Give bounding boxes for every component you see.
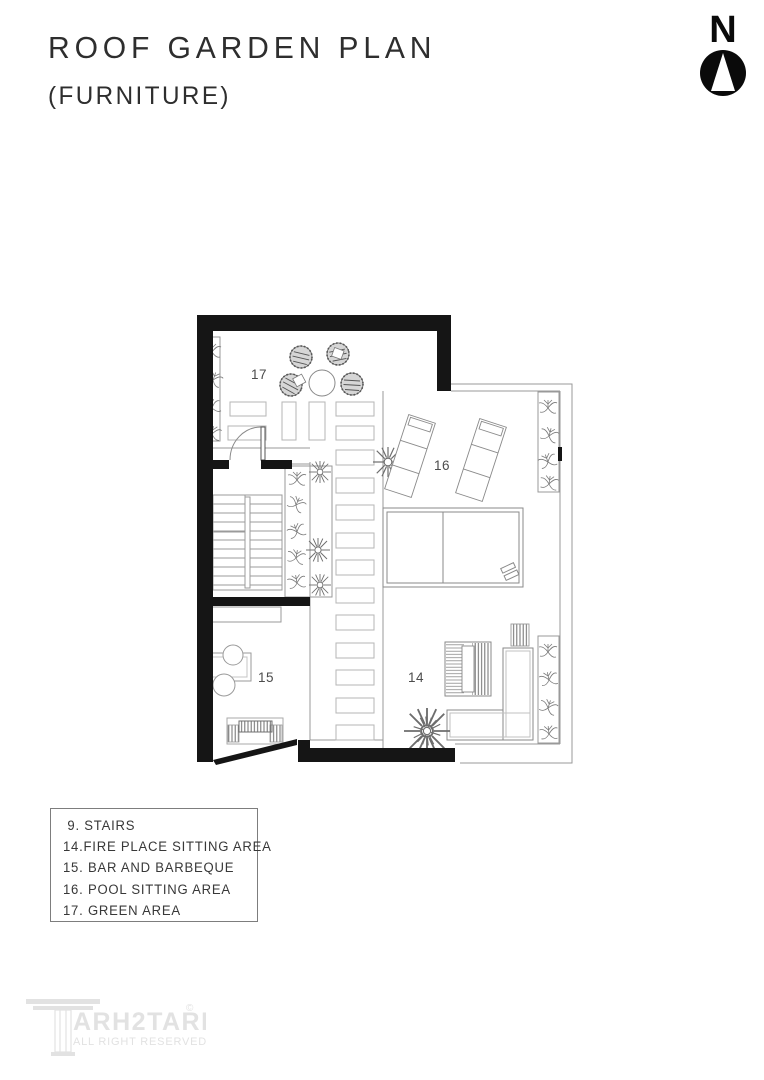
north-letter: N [709, 9, 736, 51]
area-label-17: 17 [251, 367, 267, 382]
stairs [213, 495, 282, 590]
logo: ARH2TARH © ALL RIGHT RESERVED [26, 997, 206, 1065]
page-title: ROOF GARDEN PLAN [48, 30, 436, 66]
legend-item: 14.FIRE PLACE SITTING AREA [63, 836, 251, 857]
planter-right-fire [538, 636, 559, 743]
bench [227, 718, 283, 744]
page-subtitle: (FURNITURE) [48, 82, 231, 111]
legend-item: 16. POOL SITTING AREA [63, 879, 251, 900]
wicker-seating-group [276, 341, 363, 400]
pool [383, 508, 523, 587]
grill [511, 624, 529, 646]
copyright-icon: © [186, 1003, 194, 1014]
logo-tagline: ALL RIGHT RESERVED [73, 1036, 206, 1048]
area-label-15: 15 [258, 670, 274, 685]
area-label-14: 14 [408, 670, 424, 685]
legend-item: 9. STAIRS [63, 815, 251, 836]
fire-table [445, 642, 491, 696]
tree [404, 708, 450, 754]
sheet: ROOF GARDEN PLAN (FURNITURE) N [0, 0, 764, 1080]
planter-right-pool [537, 392, 560, 492]
legend-item: 17. GREEN AREA [63, 900, 251, 921]
area-label-16: 16 [434, 458, 450, 473]
north-compass-icon [700, 50, 746, 96]
legend-item: 15. BAR AND BARBEQUE [63, 857, 251, 878]
north-arrow: N [692, 8, 754, 102]
floor-plan: 17 16 15 14 [190, 300, 590, 775]
legend-box: 9. STAIRS 14.FIRE PLACE SITTING AREA 15.… [50, 808, 258, 922]
